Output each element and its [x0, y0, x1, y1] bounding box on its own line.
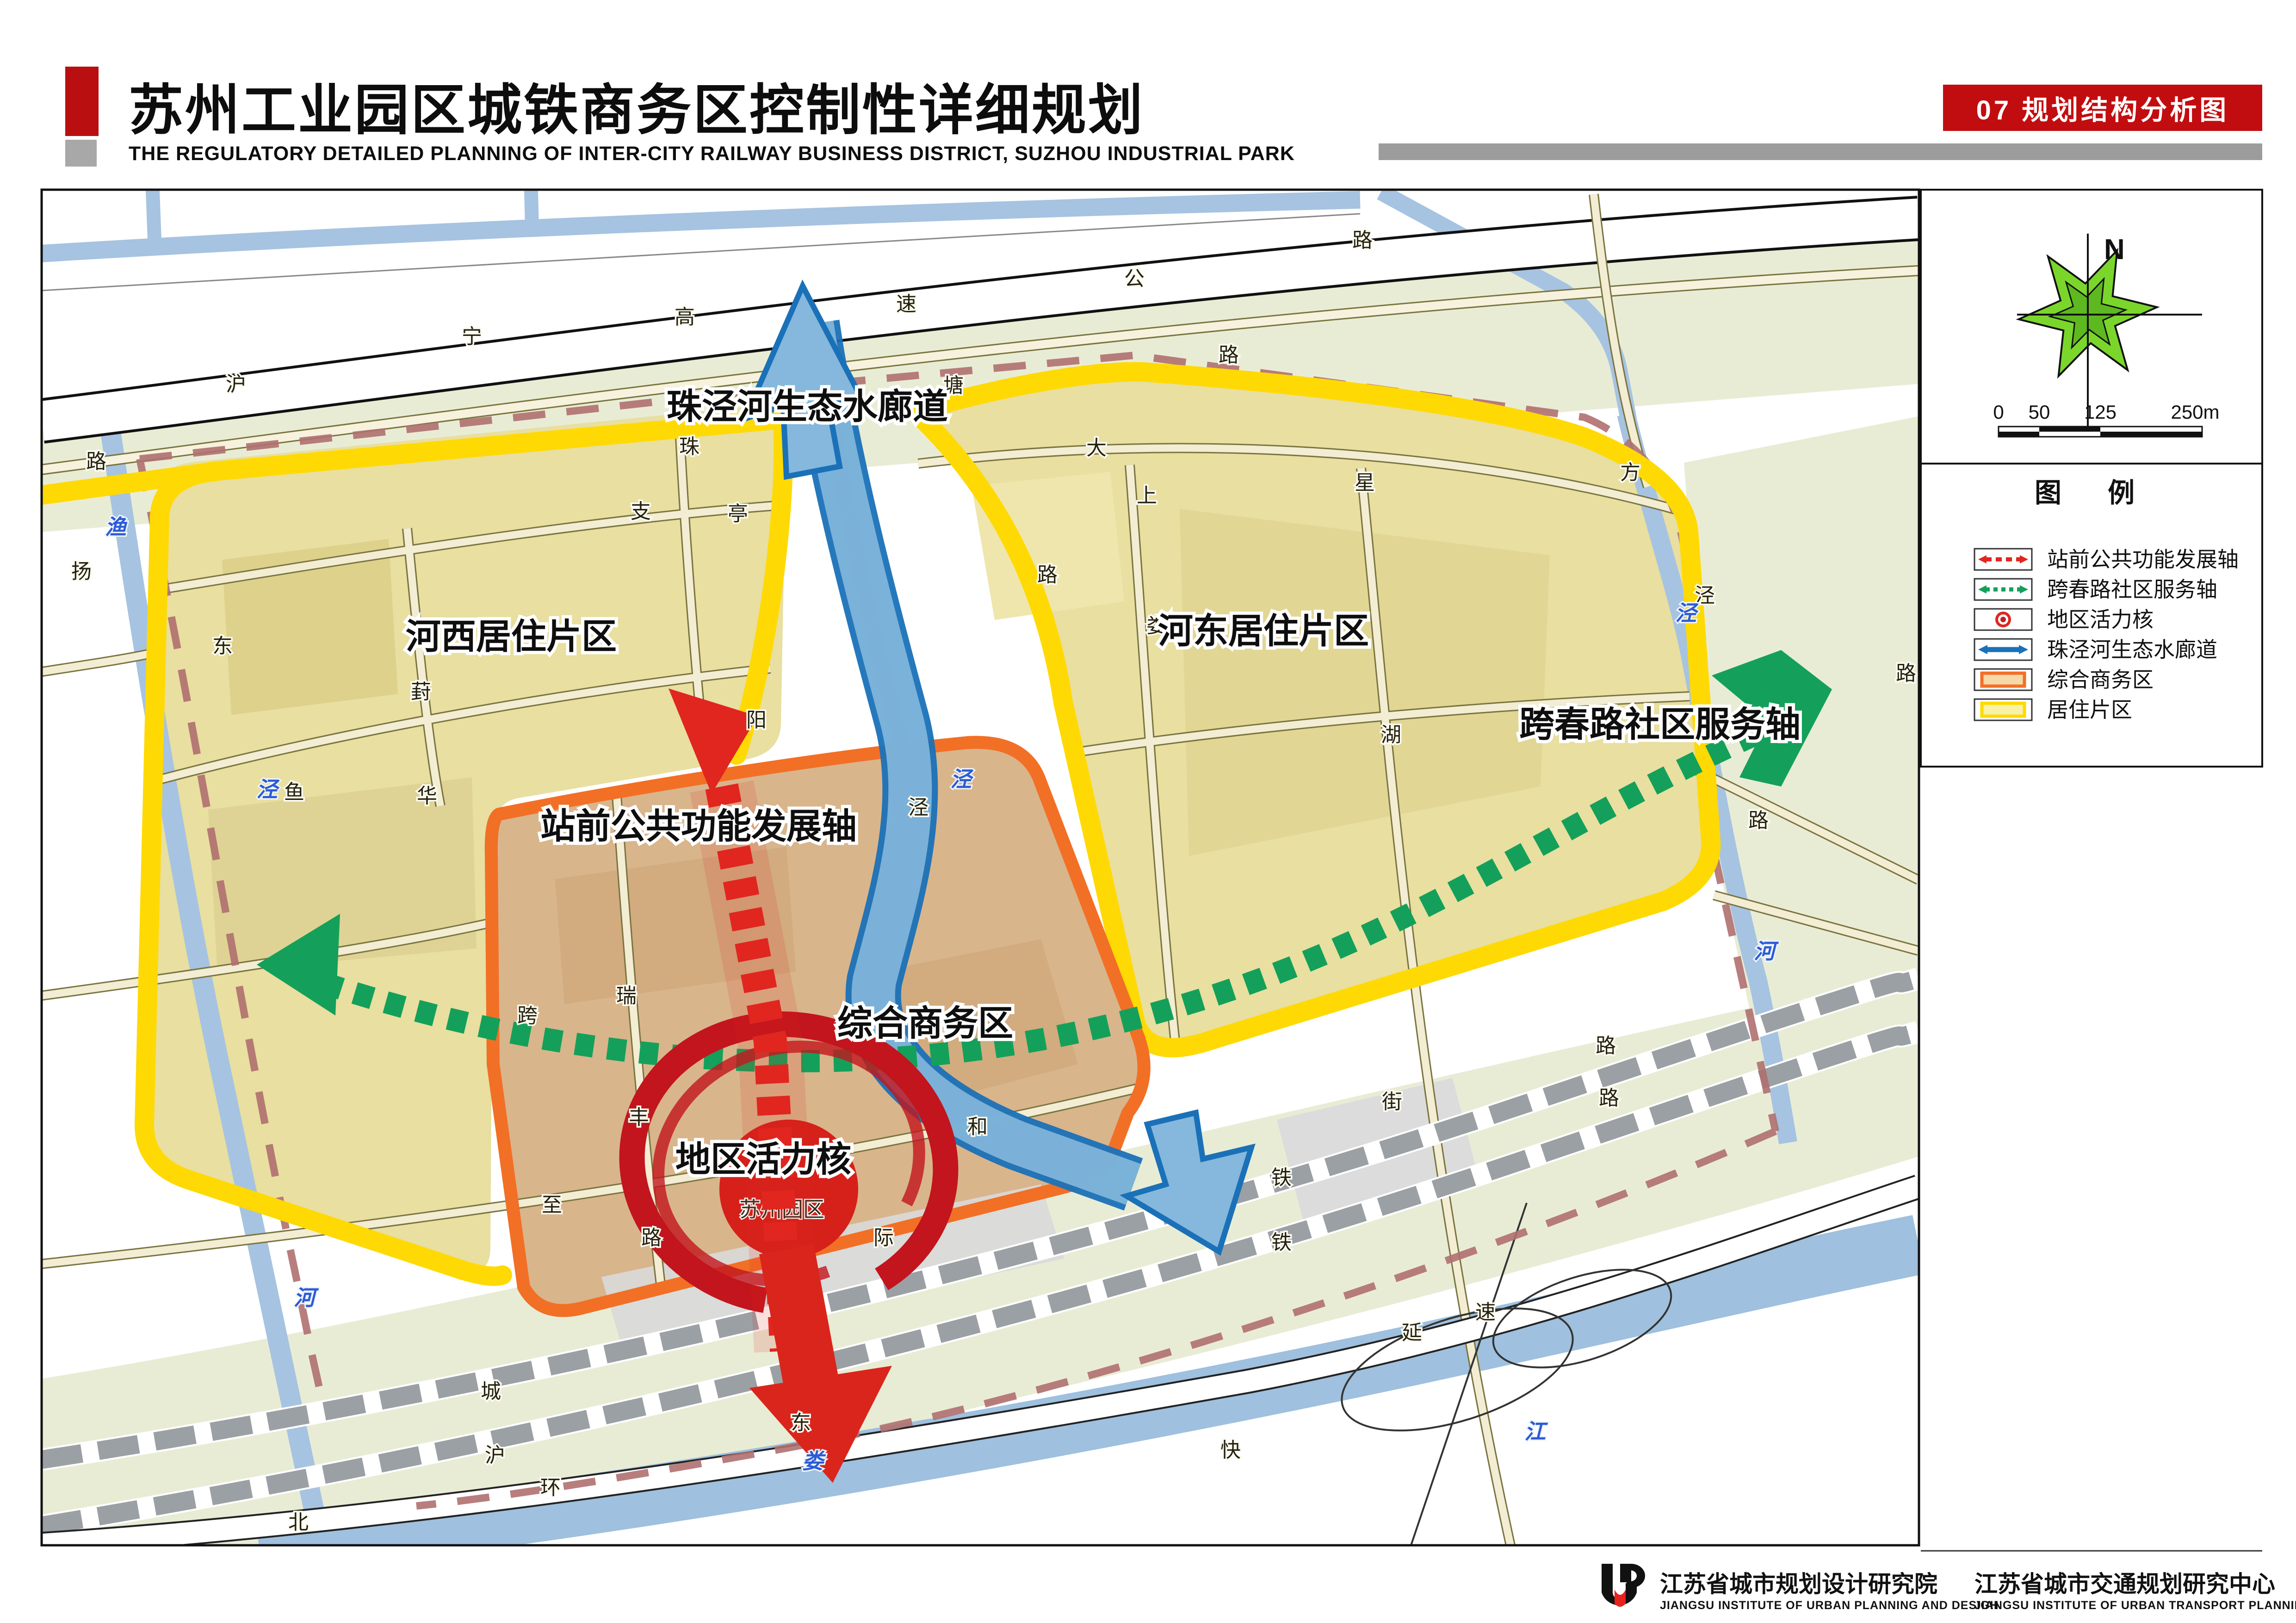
big-label: 站前公共功能发展轴 [540, 807, 857, 846]
water-label: 泾 [950, 767, 974, 791]
road-label: 铁 [1271, 1166, 1292, 1189]
road-label: 路 [1748, 809, 1769, 832]
legend-symbol-business [1974, 669, 2032, 690]
road-label: 际 [873, 1227, 894, 1249]
plan-sheet: 苏州工业园区城铁商务区控制性详细规划 THE REGULATORY DETAIL… [0, 0, 2296, 1623]
legend-label: 跨春路社区服务轴 [2047, 577, 2217, 601]
road-label: 泾 [908, 796, 928, 819]
north-scale-box: N 0 50 125 250m [1921, 190, 2262, 464]
road-label: 铁 [1271, 1231, 1292, 1254]
road-label: 北 [288, 1511, 309, 1534]
big-label: 珠泾河生态水廊道 [667, 387, 948, 427]
road-label: 上 [1137, 484, 1157, 507]
water-label: 渔 [105, 515, 128, 539]
road-label: 公 [1124, 267, 1145, 290]
road-label: 城 [481, 1380, 501, 1403]
road-label: 路 [1037, 564, 1058, 586]
road-label: 路 [1596, 1035, 1616, 1057]
legend-label: 地区活力核 [2047, 607, 2154, 632]
water-label: 娄 [802, 1449, 826, 1473]
road-label: 华 [417, 785, 437, 807]
water-label: 江 [1524, 1419, 1548, 1443]
institute-2-name: 江苏省城市交通规划研究中心 [1974, 1566, 2296, 1599]
road-label: 大 [1086, 437, 1107, 459]
scale-tick: 0 [1993, 401, 2004, 423]
road-label: 快 [1220, 1439, 1241, 1462]
institute-1: 江苏省城市规划设计研究院 JIANGSU INSTITUTE OF URBAN … [1660, 1566, 1999, 1612]
water-label: 泾 [1675, 601, 1699, 625]
big-label: 河西居住片区 [406, 617, 617, 657]
legend-box: 图 例 站前公共功能发展轴 跨春路社区服务轴 [1921, 464, 2262, 767]
legend-symbol-vitality-core [1974, 609, 2032, 630]
road-label: 星 [1355, 471, 1375, 494]
road-label: 东 [212, 635, 233, 657]
road-label: 和 [967, 1115, 988, 1138]
legend-symbol-residential [1974, 699, 2032, 720]
road-label: 方 [1620, 461, 1640, 484]
legend-label: 综合商务区 [2047, 668, 2154, 692]
road-label: 阳 [746, 709, 767, 731]
north-label: N [2104, 234, 2125, 266]
road-label: 湖 [1381, 724, 1401, 746]
legend-label: 珠泾河生态水廊道 [2047, 638, 2217, 662]
road-label: 路 [1599, 1087, 1619, 1109]
road-label: 珠 [679, 435, 699, 458]
road-label: 支 [631, 500, 651, 523]
road-label: 沪 [226, 373, 246, 396]
road-label: 至 [542, 1194, 562, 1216]
big-label: 跨春路社区服务轴 [1519, 705, 1801, 744]
road-label: 高 [675, 306, 695, 328]
road-label: 泾 [1695, 584, 1715, 607]
road-label: 环 [540, 1476, 561, 1499]
institute-2: 江苏省城市交通规划研究中心 JIANGSU INSTITUTE OF URBAN… [1974, 1566, 2296, 1612]
road-label: 路 [641, 1227, 662, 1249]
map-content: 苏州园区 沪宁高速公路塘路珠支亭东扬路葑华鱼阳泾瑞丰路跨至和大上娄路星湖街泾方路… [42, 190, 1919, 1548]
road-label: 鱼 [284, 781, 304, 804]
road-label: 路 [1896, 662, 1916, 685]
road-label: 速 [896, 293, 916, 316]
road-label: 沪 [485, 1444, 505, 1467]
road-label: 路 [1352, 229, 1373, 252]
legend-label: 站前公共功能发展轴 [2047, 547, 2239, 571]
scale-tick: 125 [2084, 401, 2117, 423]
scale-tick: 50 [2029, 401, 2050, 423]
road-label: 亭 [728, 502, 748, 525]
legend-title: 图 例 [2035, 478, 2154, 508]
big-label: 地区活力核 [675, 1140, 851, 1179]
institute-2-en: JIANGSU INSTITUTE OF URBAN TRANSPORT PLA… [1974, 1599, 2296, 1612]
road-label: 丰 [629, 1106, 649, 1129]
legend-symbol-blue-corridor [1974, 639, 2032, 660]
institute-1-en: JIANGSU INSTITUTE OF URBAN PLANNING AND … [1660, 1599, 1999, 1612]
road-label: 街 [1382, 1090, 1402, 1113]
legend-symbol-red-axis [1974, 549, 2032, 570]
institute-1-name: 江苏省城市规划设计研究院 [1660, 1566, 1999, 1599]
institute-logo [1602, 1564, 1645, 1607]
big-label: 河东居住片区 [1158, 612, 1369, 651]
road-label: 速 [1475, 1301, 1496, 1324]
scale-tick: 250m [2171, 401, 2219, 423]
road-label: 延 [1402, 1321, 1422, 1344]
big-label: 综合商务区 [837, 1004, 1013, 1043]
planning-map: 苏州园区 沪宁高速公路塘路珠支亭东扬路葑华鱼阳泾瑞丰路跨至和大上娄路星湖街泾方路… [0, 0, 2296, 1623]
road-label: 扬 [71, 560, 92, 583]
legend-label: 居住片区 [2047, 698, 2132, 722]
road-label: 路 [1219, 344, 1239, 366]
road-label: 葑 [411, 681, 431, 703]
road-label: 瑞 [616, 985, 637, 1007]
road-label: 路 [86, 450, 106, 473]
water-label: 泾 [256, 777, 280, 801]
road-label: 跨 [517, 1004, 538, 1027]
road-label: 宁 [462, 325, 482, 348]
legend-symbol-green-axis [1974, 579, 2032, 600]
road-label: 东 [791, 1412, 811, 1434]
